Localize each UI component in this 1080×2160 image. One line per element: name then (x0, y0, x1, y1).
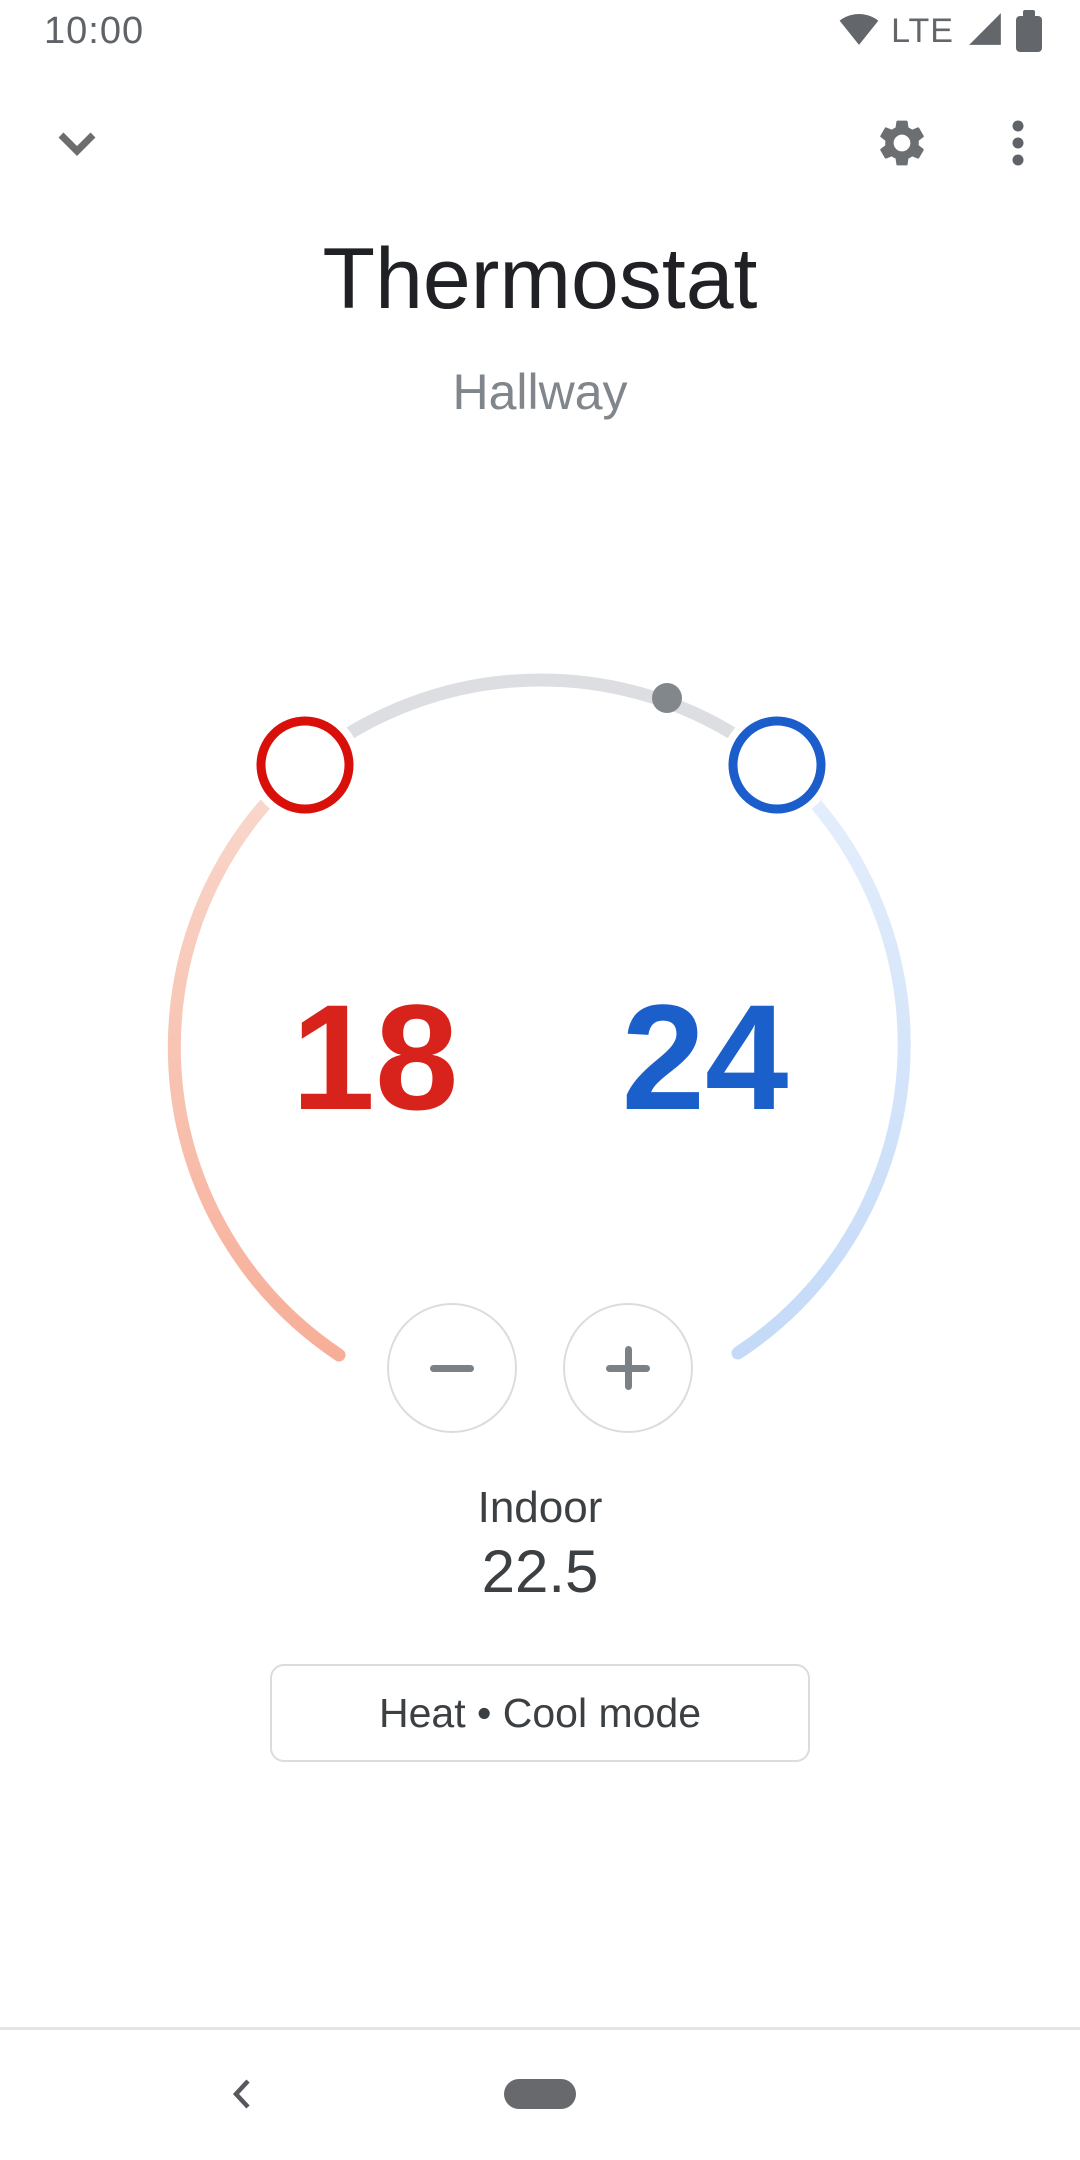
heat-handle[interactable] (261, 721, 349, 809)
minus-icon (430, 1365, 474, 1372)
mode-button[interactable]: Heat • Cool mode (270, 1664, 810, 1762)
indoor-temperature-value: 22.5 (0, 1540, 1080, 1604)
cool-handle[interactable] (733, 721, 821, 809)
plus-icon-vertical (625, 1346, 632, 1390)
dial-track (305, 680, 777, 765)
increase-temp-button[interactable] (563, 1303, 693, 1433)
current-temp-dot (652, 683, 682, 713)
back-button[interactable] (223, 2074, 263, 2114)
decrease-temp-button[interactable] (387, 1303, 517, 1433)
heat-setpoint-value: 18 (215, 982, 535, 1132)
indoor-label: Indoor (0, 1484, 1080, 1532)
nav-divider (0, 2027, 1080, 2030)
thermostat-dial (0, 0, 1080, 2160)
cool-setpoint-value: 24 (545, 982, 865, 1132)
phone-screen: 10:00 LTE (0, 0, 1080, 2160)
back-chevron-icon (223, 2102, 263, 2117)
home-pill[interactable] (504, 2079, 576, 2109)
